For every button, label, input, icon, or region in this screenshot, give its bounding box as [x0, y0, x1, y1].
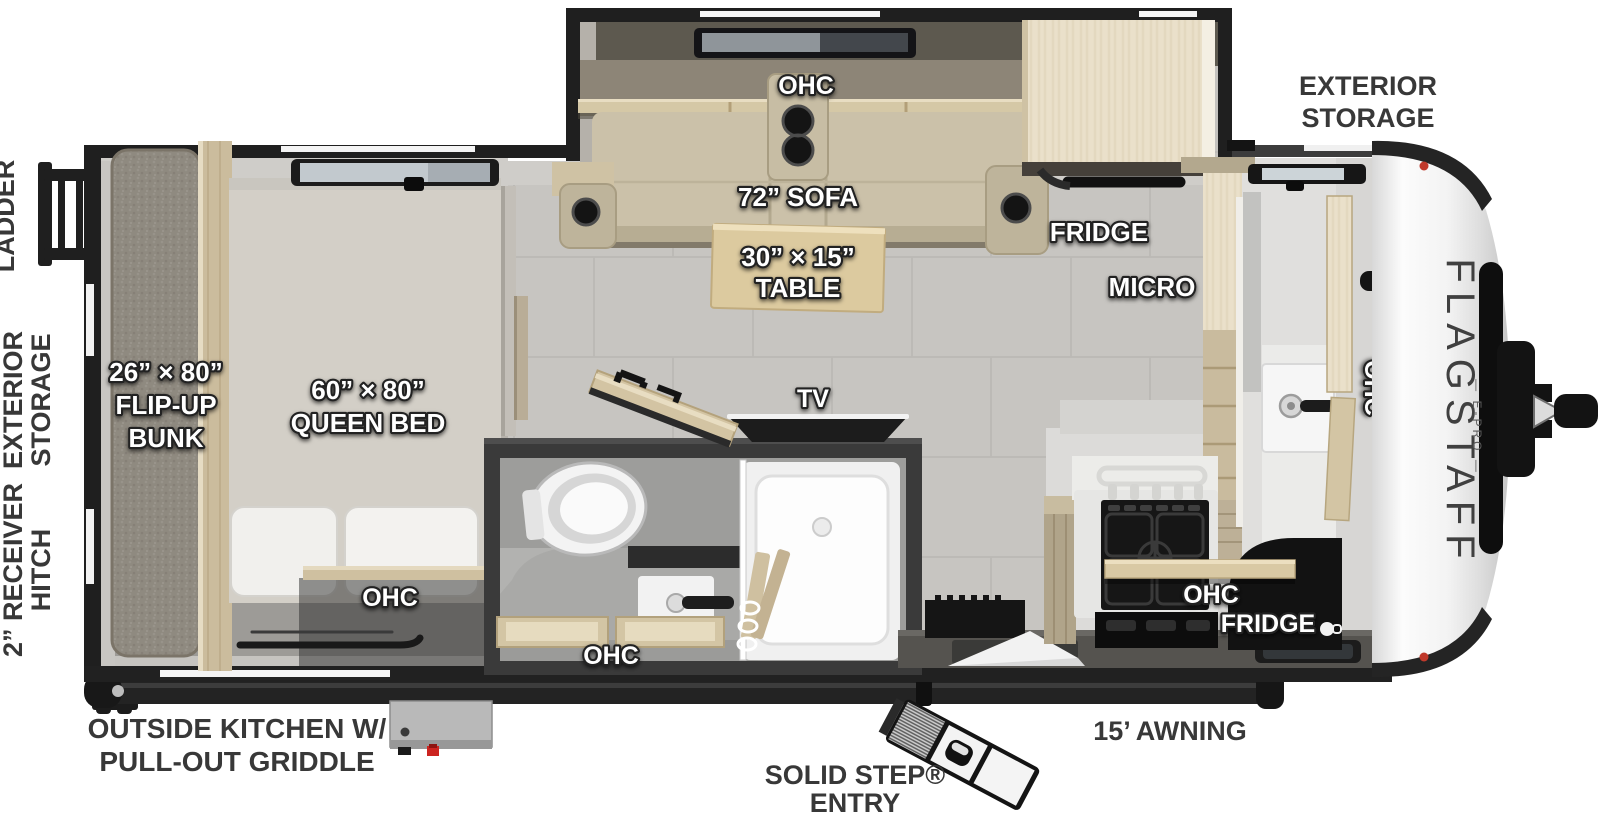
svg-text:— E-PRO —: — E-PRO —	[1470, 379, 1484, 475]
svg-text:QUEEN BED: QUEEN BED	[291, 408, 446, 438]
svg-text:HITCH: HITCH	[26, 529, 56, 612]
svg-text:FRIDGE: FRIDGE	[1050, 217, 1148, 247]
svg-text:ENTRY: ENTRY	[810, 788, 901, 813]
svg-text:FRIDGE: FRIDGE	[1221, 610, 1315, 638]
svg-text:STORAGE: STORAGE	[26, 333, 56, 466]
svg-text:2” RECEIVER: 2” RECEIVER	[0, 483, 28, 657]
svg-text:LADDER: LADDER	[0, 160, 20, 273]
svg-text:PULL-OUT GRIDDLE: PULL-OUT GRIDDLE	[99, 746, 374, 777]
svg-text:SOLID STEP®: SOLID STEP®	[765, 760, 946, 790]
svg-text:OHC: OHC	[362, 584, 418, 612]
svg-text:STORAGE: STORAGE	[1301, 103, 1434, 133]
svg-text:OHC: OHC	[778, 72, 834, 100]
svg-text:OHC: OHC	[583, 642, 639, 670]
svg-text:EXTERIOR: EXTERIOR	[0, 331, 28, 469]
svg-text:FLIP-UP: FLIP-UP	[115, 390, 216, 420]
svg-text:15’ AWNING: 15’ AWNING	[1093, 716, 1247, 746]
svg-text:26” × 80”: 26” × 80”	[109, 357, 222, 387]
svg-text:60” × 80”: 60” × 80”	[311, 375, 424, 405]
svg-text:BUNK: BUNK	[128, 423, 203, 453]
svg-text:TABLE: TABLE	[756, 273, 841, 303]
svg-text:MICRO: MICRO	[1109, 272, 1196, 302]
svg-text:OUTSIDE KITCHEN W/: OUTSIDE KITCHEN W/	[88, 713, 387, 744]
svg-text:72” SOFA: 72” SOFA	[738, 182, 858, 212]
svg-text:TV: TV	[797, 385, 829, 413]
svg-text:OHC: OHC	[1183, 581, 1239, 609]
svg-text:30” × 15”: 30” × 15”	[741, 242, 854, 272]
svg-text:EXTERIOR: EXTERIOR	[1299, 71, 1437, 101]
